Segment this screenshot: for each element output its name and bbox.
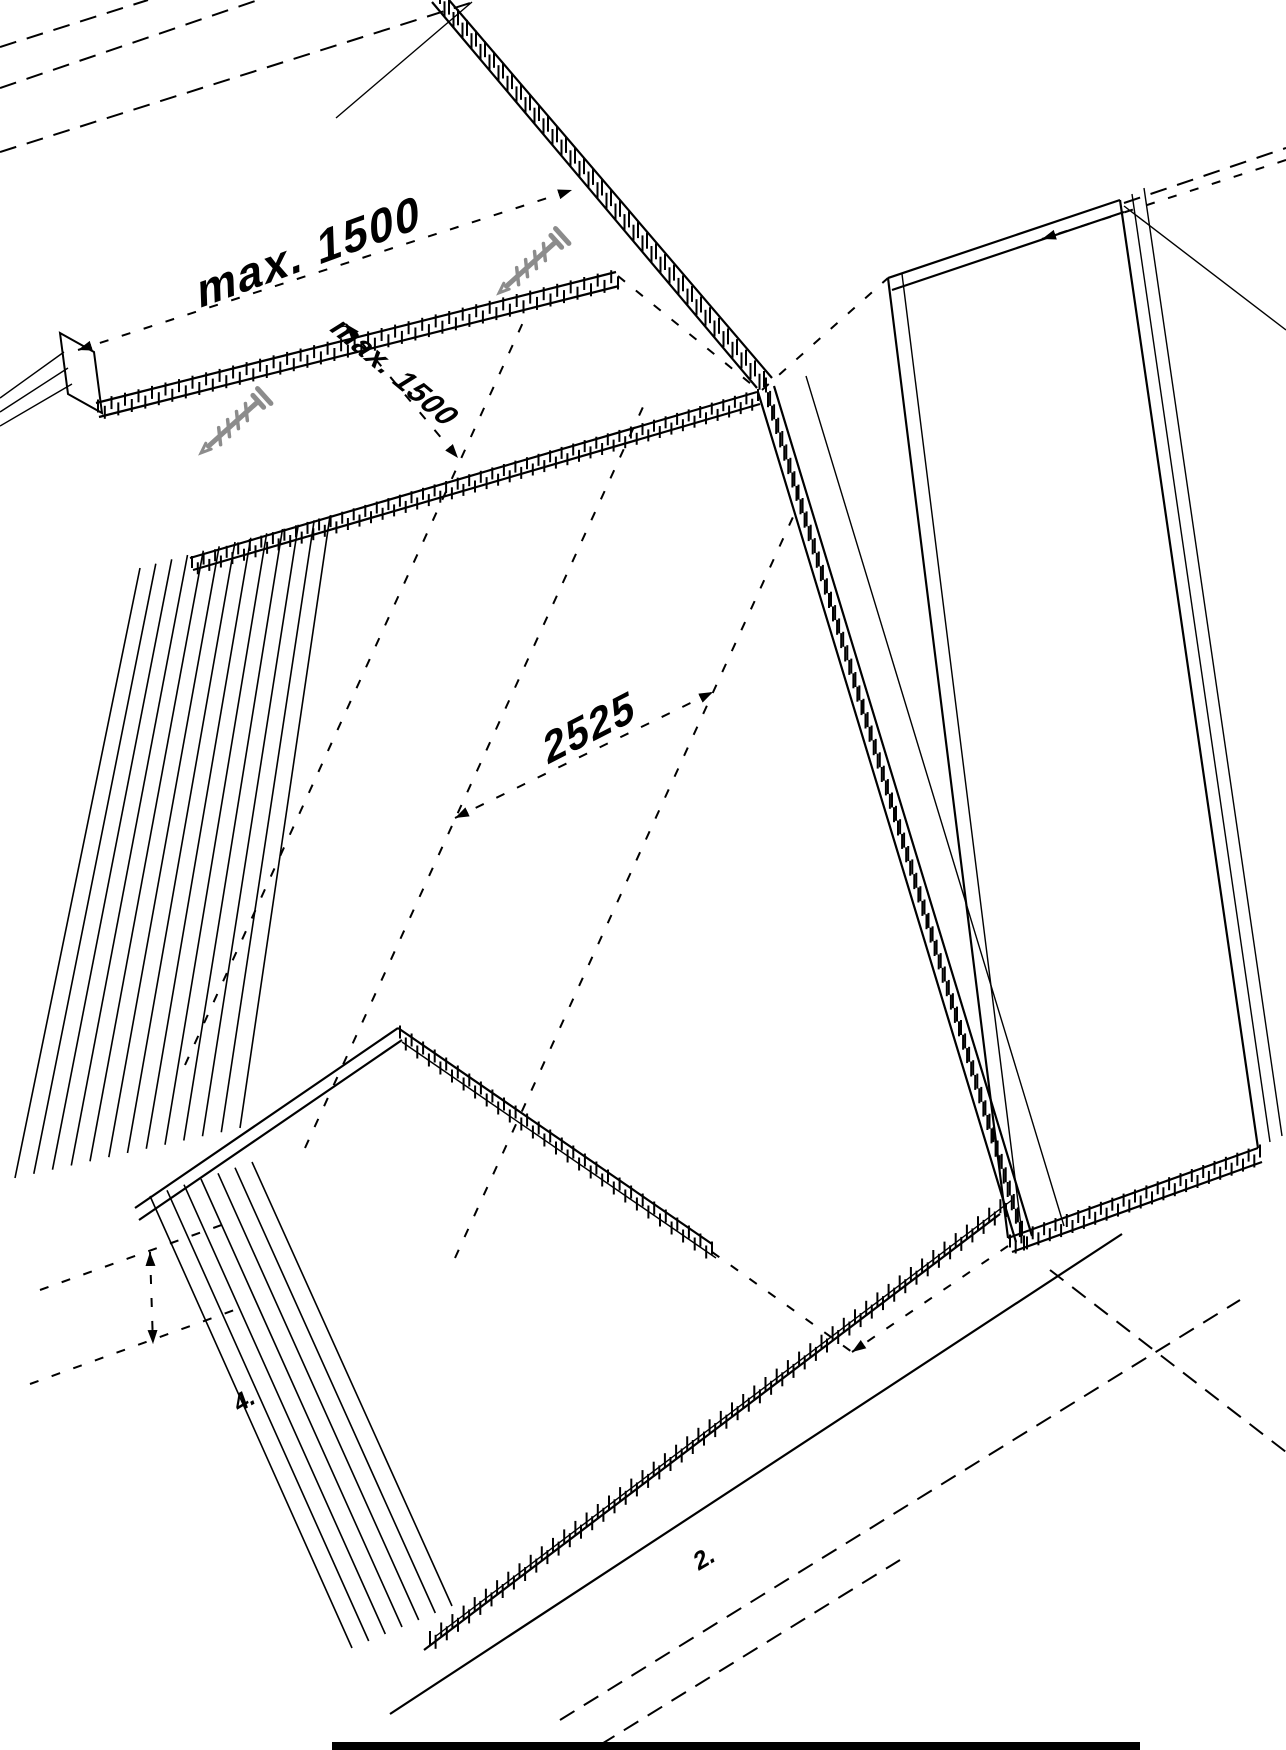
rail-end-cap <box>60 333 102 413</box>
technical-drawing-page: max. 1500 max. 1500 2525 <box>0 0 1286 1750</box>
bottom-panel: 2. <box>390 1199 1240 1745</box>
middle-panel-top-edge <box>190 389 760 574</box>
dimension-top: max. 1500 <box>78 184 572 350</box>
dimension-bottom-left: 4. <box>30 1222 258 1419</box>
upper-panel-right-edge <box>432 0 772 390</box>
panel-fold-lines <box>185 318 798 1258</box>
isometric-assembly-diagram: max. 1500 max. 1500 2525 <box>0 0 1286 1750</box>
phantom-outline-top-left <box>0 0 888 390</box>
screw-icon <box>194 389 271 461</box>
upper-front-rail <box>0 270 619 426</box>
right-panel <box>888 148 1286 1238</box>
dimension-label-top: max. 1500 <box>197 184 422 320</box>
note-label-right: 2. <box>690 1540 718 1577</box>
bottom-left-panel <box>135 1026 852 1353</box>
middle-panel-right-edge <box>758 376 1064 1251</box>
dimension-center: 2525 <box>455 681 713 818</box>
dimension-label-center: 2525 <box>541 681 639 776</box>
figure-bottom-edge <box>332 1742 1140 1750</box>
note-label-left: 4. <box>230 1382 258 1419</box>
middle-panel-end-face <box>15 516 330 1178</box>
